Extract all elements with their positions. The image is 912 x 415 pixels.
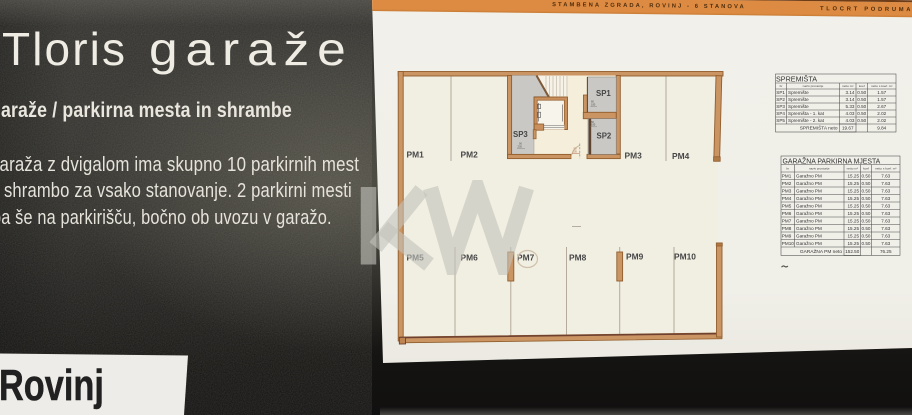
svg-text:br: br [786,166,789,170]
svg-text:SPREMIŠTA neto: SPREMIŠTA neto [800,125,838,132]
svg-text:SP5: SP5 [776,118,785,123]
svg-text:3.14: 3.14 [846,97,855,102]
svg-text:7.63: 7.63 [881,188,890,193]
svg-text:GARAŽNA PM neto: GARAŽNA PM neto [800,247,842,255]
svg-text:185: 185 [591,123,596,127]
svg-text:SP3: SP3 [513,130,528,139]
svg-text:15.25: 15.25 [848,233,860,238]
svg-text:PM6: PM6 [782,211,792,216]
svg-text:4.03: 4.03 [846,118,855,123]
svg-text:7.63: 7.63 [881,203,890,208]
svg-text:Spremište: Spremište [788,90,809,95]
svg-text:SP1: SP1 [596,89,611,98]
svg-text:PM4: PM4 [782,196,792,201]
svg-text:PM4: PM4 [672,151,690,161]
svg-text:76.25: 76.25 [880,249,892,254]
svg-text:koef: koef [859,84,865,88]
svg-text:PM3: PM3 [782,188,792,193]
svg-text:Garažno PM: Garažno PM [796,241,822,246]
svg-text:PM8: PM8 [782,226,792,231]
svg-text:Spremišta - 1. kat: Spremišta - 1. kat [788,111,825,116]
svg-text:15.25: 15.25 [848,241,860,246]
svg-text:0.50: 0.50 [857,111,866,116]
svg-text:SP1: SP1 [776,90,785,95]
svg-text:SP4: SP4 [776,111,785,116]
svg-text:PM2: PM2 [782,181,792,186]
svg-text:0.50: 0.50 [857,118,866,123]
svg-text:205: 205 [518,145,523,149]
svg-text:0.50: 0.50 [862,196,871,201]
svg-text:0.50: 0.50 [862,188,871,193]
svg-text:0.50: 0.50 [862,181,871,186]
svg-text:0.50: 0.50 [862,241,871,246]
svg-text:PM9: PM9 [626,252,644,262]
svg-text:0.50: 0.50 [862,218,871,223]
svg-text:PM7: PM7 [782,218,792,223]
svg-text:PM1: PM1 [782,173,792,178]
svg-text:SPREMIŠTA: SPREMIŠTA [776,74,817,83]
svg-text:7.63: 7.63 [881,218,890,223]
svg-text:205: 205 [573,150,578,154]
svg-text:PM2: PM2 [461,150,479,160]
svg-text:0.50: 0.50 [862,203,871,208]
svg-text:1.57: 1.57 [877,97,886,102]
svg-text:Garažno PM: Garažno PM [796,233,822,238]
svg-text:GARAŽNA PARKIRNA MJESTA: GARAŽNA PARKIRNA MJESTA [783,157,881,166]
svg-text:SP3: SP3 [776,104,785,109]
svg-text:SP2: SP2 [597,131,612,140]
svg-text:netto m²: netto m² [847,166,858,170]
svg-text:PM8: PM8 [569,253,587,263]
svg-text:15.25: 15.25 [848,211,860,216]
svg-text:0.50: 0.50 [857,97,866,102]
svg-text:Garažno PM: Garažno PM [796,218,822,223]
svg-text:15.25: 15.25 [848,181,860,186]
svg-text:0.50: 0.50 [857,90,866,95]
svg-text:3.14: 3.14 [846,90,855,95]
svg-text:7.63: 7.63 [881,173,890,178]
svg-text:7.63: 7.63 [881,233,890,238]
svg-text:SP2: SP2 [776,97,785,102]
svg-text:7.63: 7.63 [881,181,890,186]
svg-text:netto s koef. m²: netto s koef. m² [875,166,896,170]
svg-text:15.25: 15.25 [848,188,860,193]
svg-text:2.02: 2.02 [877,118,886,123]
svg-text:PM5: PM5 [782,203,792,208]
svg-text:15.25: 15.25 [848,196,860,201]
svg-text:0.50: 0.50 [862,226,871,231]
svg-text:Spremište: Spremište [788,97,809,102]
svg-text:2.02: 2.02 [877,111,886,116]
svg-text:naziv prostorije: naziv prostorije [803,84,824,88]
svg-text:4.03: 4.03 [846,111,855,116]
svg-text:1.57: 1.57 [877,90,886,95]
svg-text:naziv prostorije: naziv prostorije [809,166,830,170]
svg-text:19.67: 19.67 [842,126,854,131]
svg-text:15.25: 15.25 [848,226,860,231]
svg-text:7.63: 7.63 [881,226,890,231]
svg-text:Garažno PM: Garažno PM [796,188,822,193]
svg-text:0.50: 0.50 [862,173,871,178]
svg-text:PM9: PM9 [782,233,792,238]
svg-text:Spremište: Spremište [788,104,809,109]
svg-text:7.63: 7.63 [881,196,890,201]
svg-text:netto s koef. m²: netto s koef. m² [871,84,892,88]
svg-text:PM10: PM10 [674,252,696,262]
svg-text:15.25: 15.25 [848,173,860,178]
svg-text:185: 185 [591,102,596,106]
svg-text:7.63: 7.63 [881,211,890,216]
svg-text:PM1: PM1 [407,150,425,160]
svg-text:Garažno PM: Garažno PM [796,181,822,186]
svg-text:Garažno PM: Garažno PM [796,173,822,178]
svg-text:br: br [780,84,783,88]
svg-text:Garažno PM: Garažno PM [796,196,822,201]
svg-text:0.50: 0.50 [862,211,871,216]
svg-text:Garažno PM: Garažno PM [796,211,822,216]
svg-text:5.33: 5.33 [846,104,855,109]
svg-text:Spremište - 2. kat: Spremište - 2. kat [788,118,825,123]
svg-text:2.67: 2.67 [877,104,886,109]
svg-text:netto m²: netto m² [842,84,853,88]
svg-text:7.63: 7.63 [881,241,890,246]
svg-text:PM3: PM3 [625,151,643,161]
svg-text:Garažno PM: Garažno PM [796,226,822,231]
svg-text:0.50: 0.50 [857,104,866,109]
svg-text:0.50: 0.50 [862,233,871,238]
svg-text:koef: koef [863,166,869,170]
svg-text:PM10: PM10 [782,241,794,246]
svg-text:9.84: 9.84 [877,126,886,131]
svg-text:15.25: 15.25 [848,218,860,223]
svg-text:Garažno PM: Garažno PM [796,203,822,208]
svg-text:152.50: 152.50 [845,249,859,254]
svg-text:15.25: 15.25 [848,203,860,208]
